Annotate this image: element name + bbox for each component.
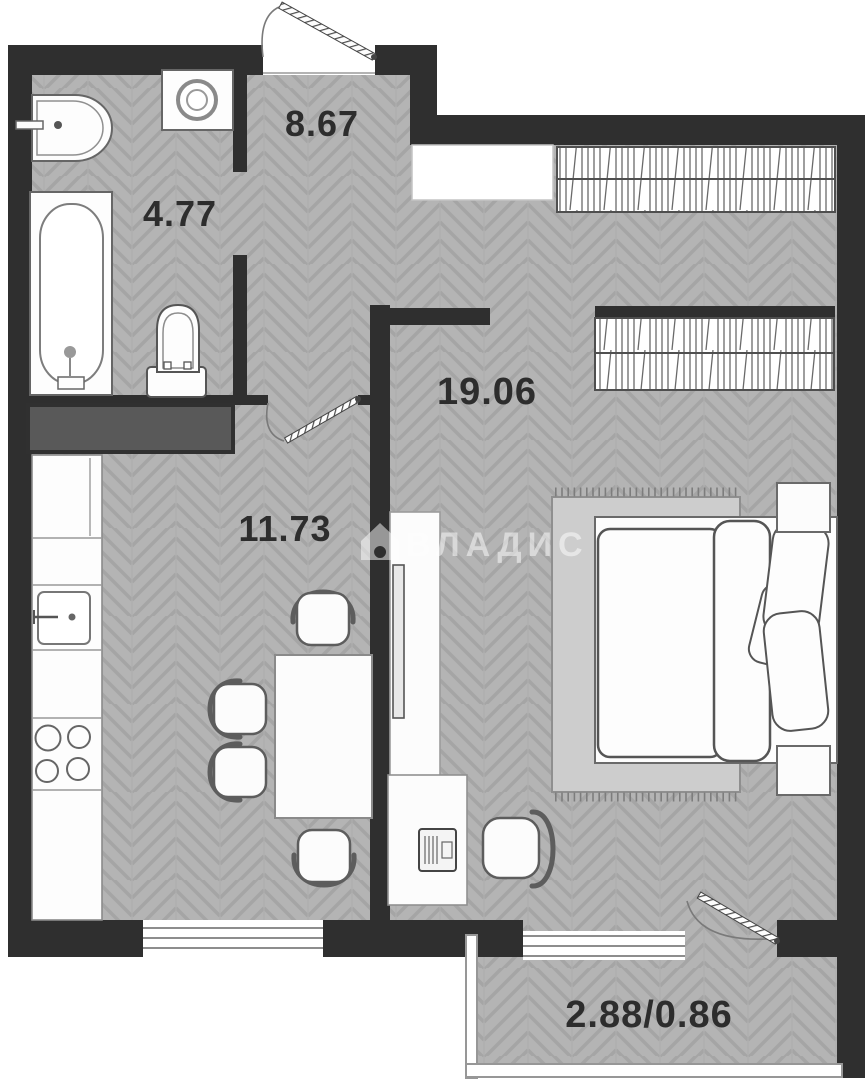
wardrobe-top	[557, 147, 835, 212]
tv	[393, 565, 404, 718]
washing-machine	[162, 70, 233, 130]
chair-left-2	[210, 744, 266, 800]
wardrobe-bedroom	[595, 318, 834, 390]
bathtub-faucet	[58, 377, 84, 389]
entry-niche	[412, 145, 553, 200]
bed	[595, 517, 837, 763]
living-area-label: 19.06	[437, 371, 537, 413]
outside-area	[437, 0, 865, 115]
bathroom-area-label: 4.77	[143, 193, 217, 234]
kitchen-counter	[32, 455, 102, 920]
hall-closet	[28, 405, 233, 452]
chair-left-1	[210, 681, 266, 737]
wall-left	[8, 45, 32, 957]
nightstand-bottom	[777, 746, 830, 795]
nightstand-top	[777, 483, 830, 532]
laptop	[419, 829, 456, 871]
bathtub-drain	[64, 346, 76, 358]
wall-entrance-connector	[410, 75, 437, 145]
kitchen-window	[143, 920, 323, 957]
pillow-bottom	[762, 609, 830, 732]
wall-right	[837, 115, 865, 1078]
entrance-door-leaf	[279, 2, 376, 60]
wall-partition	[370, 305, 390, 920]
wall-bottom-c	[777, 920, 837, 957]
wall-bathroom-upper	[233, 75, 247, 172]
wall-corridor-stub	[370, 308, 490, 325]
kitchen-sink	[34, 592, 90, 644]
wall-bathroom-lower	[233, 255, 247, 403]
entrance-door-arc	[262, 7, 279, 57]
bedroom-balcony-window	[523, 931, 685, 960]
balcony-area-label: 2.88/0.86	[565, 994, 732, 1036]
dining-table	[275, 655, 372, 818]
wall-entrance-right	[375, 45, 437, 75]
blanket	[598, 529, 722, 757]
wall-wardrobe-bar	[595, 306, 835, 318]
floor-plan: 8.67 4.77 19.06 11.73 2.88/0.86 ВЛАДИС	[0, 0, 865, 1080]
sink-faucet	[16, 121, 43, 129]
chair-bottom	[294, 830, 354, 885]
wall-bottom-b	[323, 920, 523, 957]
watermark-text: ВЛАДИС	[406, 526, 589, 564]
floor-plan-svg: 8.67 4.77 19.06 11.73 2.88/0.86 ВЛАДИС	[0, 0, 865, 1080]
hallway-area-label: 8.67	[285, 103, 359, 144]
chair-top	[293, 592, 353, 645]
kitchen-area-label: 11.73	[238, 508, 331, 549]
wall-top-bedroom	[437, 115, 865, 145]
entrance-door	[262, 2, 377, 60]
bathtub	[30, 192, 112, 395]
desk	[388, 775, 467, 905]
wall-bottom-a	[8, 920, 143, 957]
